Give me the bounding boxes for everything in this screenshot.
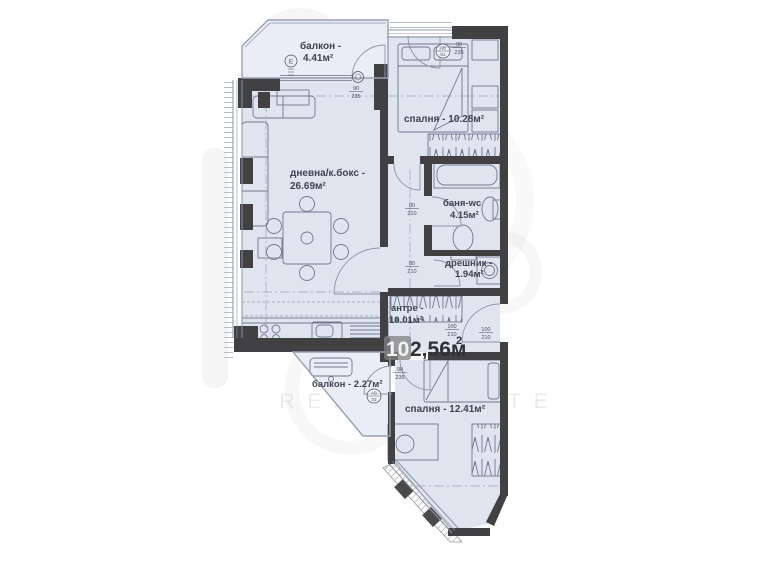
svg-text:210: 210 bbox=[407, 211, 416, 217]
balcony2-label: балкон - 2.27м² bbox=[312, 379, 382, 390]
closet-label-line2: 1.94м² bbox=[455, 269, 484, 280]
svg-text:100: 100 bbox=[447, 324, 456, 330]
living-floor bbox=[242, 78, 388, 340]
living-label-line2: 26.69м² bbox=[290, 181, 326, 192]
living-label-line1: дневна/к.бокс - bbox=[290, 167, 365, 179]
svg-text:Е: Е bbox=[289, 59, 294, 66]
total-area: 10 2,56м 2 bbox=[384, 335, 466, 361]
svg-text:235: 235 bbox=[351, 94, 360, 100]
total-area-sup: 2 bbox=[456, 335, 462, 347]
floor-plan-drawing: REAL ESTATE bbox=[0, 0, 758, 564]
svg-text:01: 01 bbox=[440, 52, 446, 57]
wardrobe-bedroom2 bbox=[472, 424, 502, 476]
svg-text:210: 210 bbox=[447, 332, 456, 338]
bedroom2-label: спалня - 12.41м² bbox=[405, 404, 486, 415]
wall-closet-bottom bbox=[388, 288, 508, 296]
wall-right-upper bbox=[500, 26, 508, 304]
wall-jamb bbox=[374, 64, 388, 110]
bath-label-line2: 4.15м² bbox=[450, 210, 479, 221]
svg-text:90: 90 bbox=[353, 86, 359, 92]
svg-text:АВ: АВ bbox=[440, 46, 446, 51]
wall-bedroom1-bottom bbox=[420, 156, 508, 164]
marker-AB01: АВ 01 bbox=[436, 44, 450, 58]
svg-text:90: 90 bbox=[397, 367, 403, 373]
total-area-prefix: 10 bbox=[386, 338, 409, 361]
hall-label-line1: антре - bbox=[391, 303, 424, 314]
wall-right-lower bbox=[500, 342, 508, 496]
svg-text:235: 235 bbox=[454, 50, 463, 56]
marker-AB03: АВ 03 bbox=[367, 389, 381, 403]
closet-label-line1: дрешник - bbox=[445, 258, 492, 269]
bedroom1-label: спалня - 10.28м² bbox=[404, 114, 485, 125]
wall-kitchen-bottom bbox=[234, 338, 390, 352]
balcony1-label-line2: 4.41м² bbox=[303, 53, 334, 64]
wall-top-right bbox=[452, 26, 508, 39]
svg-text:235: 235 bbox=[395, 375, 404, 381]
svg-text:210: 210 bbox=[407, 269, 416, 275]
wall-bedroom2-bottom bbox=[448, 528, 490, 536]
floor-plan-page: REAL ESTATE bbox=[0, 0, 758, 564]
svg-text:АВ: АВ bbox=[371, 391, 377, 396]
bath-label-line1: баня-wc bbox=[443, 198, 481, 209]
svg-text:90: 90 bbox=[456, 42, 462, 48]
balcony1-label-line1: балкон - bbox=[300, 40, 341, 52]
hall-label-line2: 10.01м² bbox=[389, 315, 423, 326]
svg-text:210: 210 bbox=[481, 335, 490, 341]
svg-text:80: 80 bbox=[409, 261, 415, 267]
svg-text:03: 03 bbox=[371, 397, 377, 402]
svg-text:100: 100 bbox=[481, 327, 490, 333]
svg-text:80: 80 bbox=[409, 203, 415, 209]
